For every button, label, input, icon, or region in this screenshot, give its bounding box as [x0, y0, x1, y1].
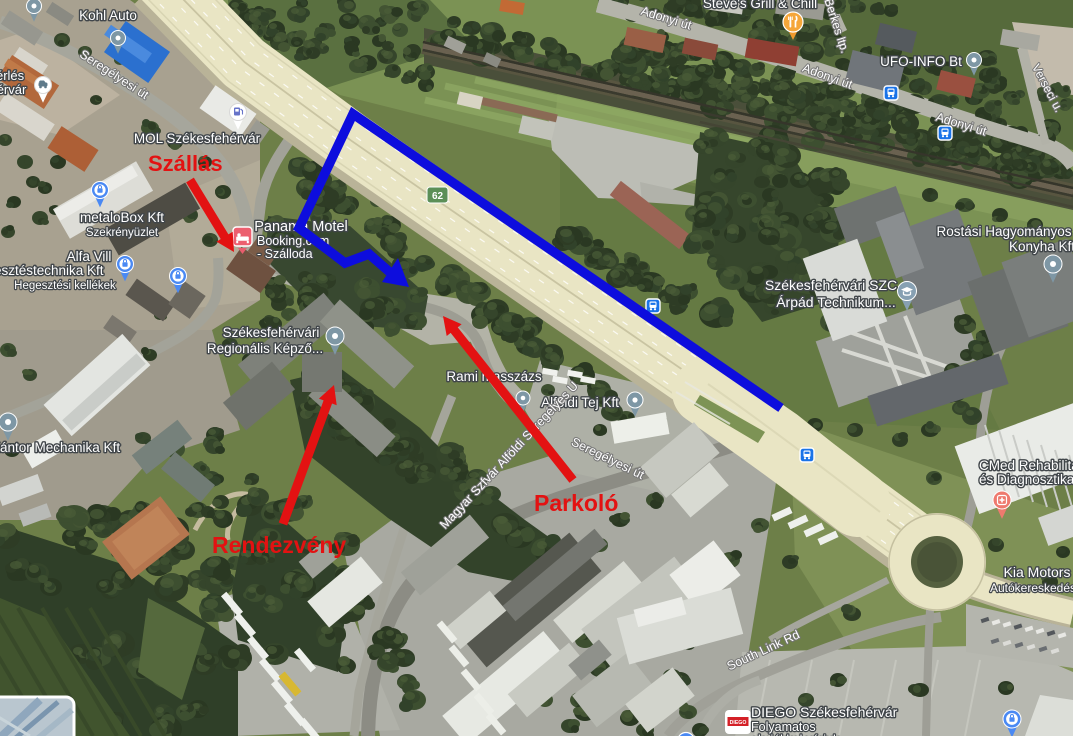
- svg-text:Székesfehérvári SZC: Székesfehérvári SZC: [765, 277, 897, 293]
- svg-text:metaloBox Kft: metaloBox Kft: [80, 210, 164, 225]
- svg-text:Autóbérlés: Autóbérlés: [0, 68, 25, 83]
- svg-text:UFO-INFO Bt: UFO-INFO Bt: [880, 54, 962, 69]
- svg-text:Folyamatos: Folyamatos: [751, 720, 816, 734]
- svg-text:esztéstechnika Kft: esztéstechnika Kft: [0, 263, 104, 278]
- svg-text:Szállás: Szállás: [148, 151, 223, 176]
- svg-text:CMed Rehabilitáció: CMed Rehabilitáció: [979, 458, 1073, 473]
- svg-text:Parkoló: Parkoló: [534, 490, 618, 516]
- svg-text:Kántor Mechanika Kft: Kántor Mechanika Kft: [0, 440, 120, 455]
- svg-text:Székesfehérvári: Székesfehérvári: [223, 325, 320, 340]
- svg-text:Regionális Képző...: Regionális Képző...: [207, 341, 323, 356]
- svg-text:Rostási Hagyományos: Rostási Hagyományos: [936, 224, 1071, 239]
- svg-text:Kia Motors: Kia Motors: [1004, 564, 1071, 580]
- svg-text:62: 62: [432, 191, 444, 202]
- svg-text:és Diagnosztika...: és Diagnosztika...: [979, 472, 1073, 487]
- svg-text:Rendezvény: Rendezvény: [212, 532, 346, 558]
- svg-text:Autókereskedés: Autókereskedés: [990, 581, 1073, 595]
- svg-text:Steve's Grill & Chill: Steve's Grill & Chill: [703, 0, 817, 11]
- svg-text:- Szálloda: - Szálloda: [257, 247, 313, 261]
- svg-text:Alfa Vill: Alfa Vill: [67, 249, 112, 264]
- svg-text:Székesfehérvár: Székesfehérvár: [0, 82, 27, 97]
- svg-text:DIEGO: DIEGO: [730, 720, 747, 726]
- svg-text:Szekrényüzlet: Szekrényüzlet: [86, 227, 159, 239]
- svg-text:Kohl Auto: Kohl Auto: [79, 8, 137, 23]
- svg-text:DIEGO Székesfehérvár: DIEGO Székesfehérvár: [751, 704, 898, 720]
- svg-text:MOL Székesfehérvár: MOL Székesfehérvár: [134, 131, 261, 146]
- svg-text:Hegesztési kellékek: Hegesztési kellékek: [14, 280, 116, 292]
- svg-text:Árpád Technikum...: Árpád Technikum...: [776, 294, 896, 310]
- svg-text:Konyha Kft: Konyha Kft: [1009, 239, 1073, 254]
